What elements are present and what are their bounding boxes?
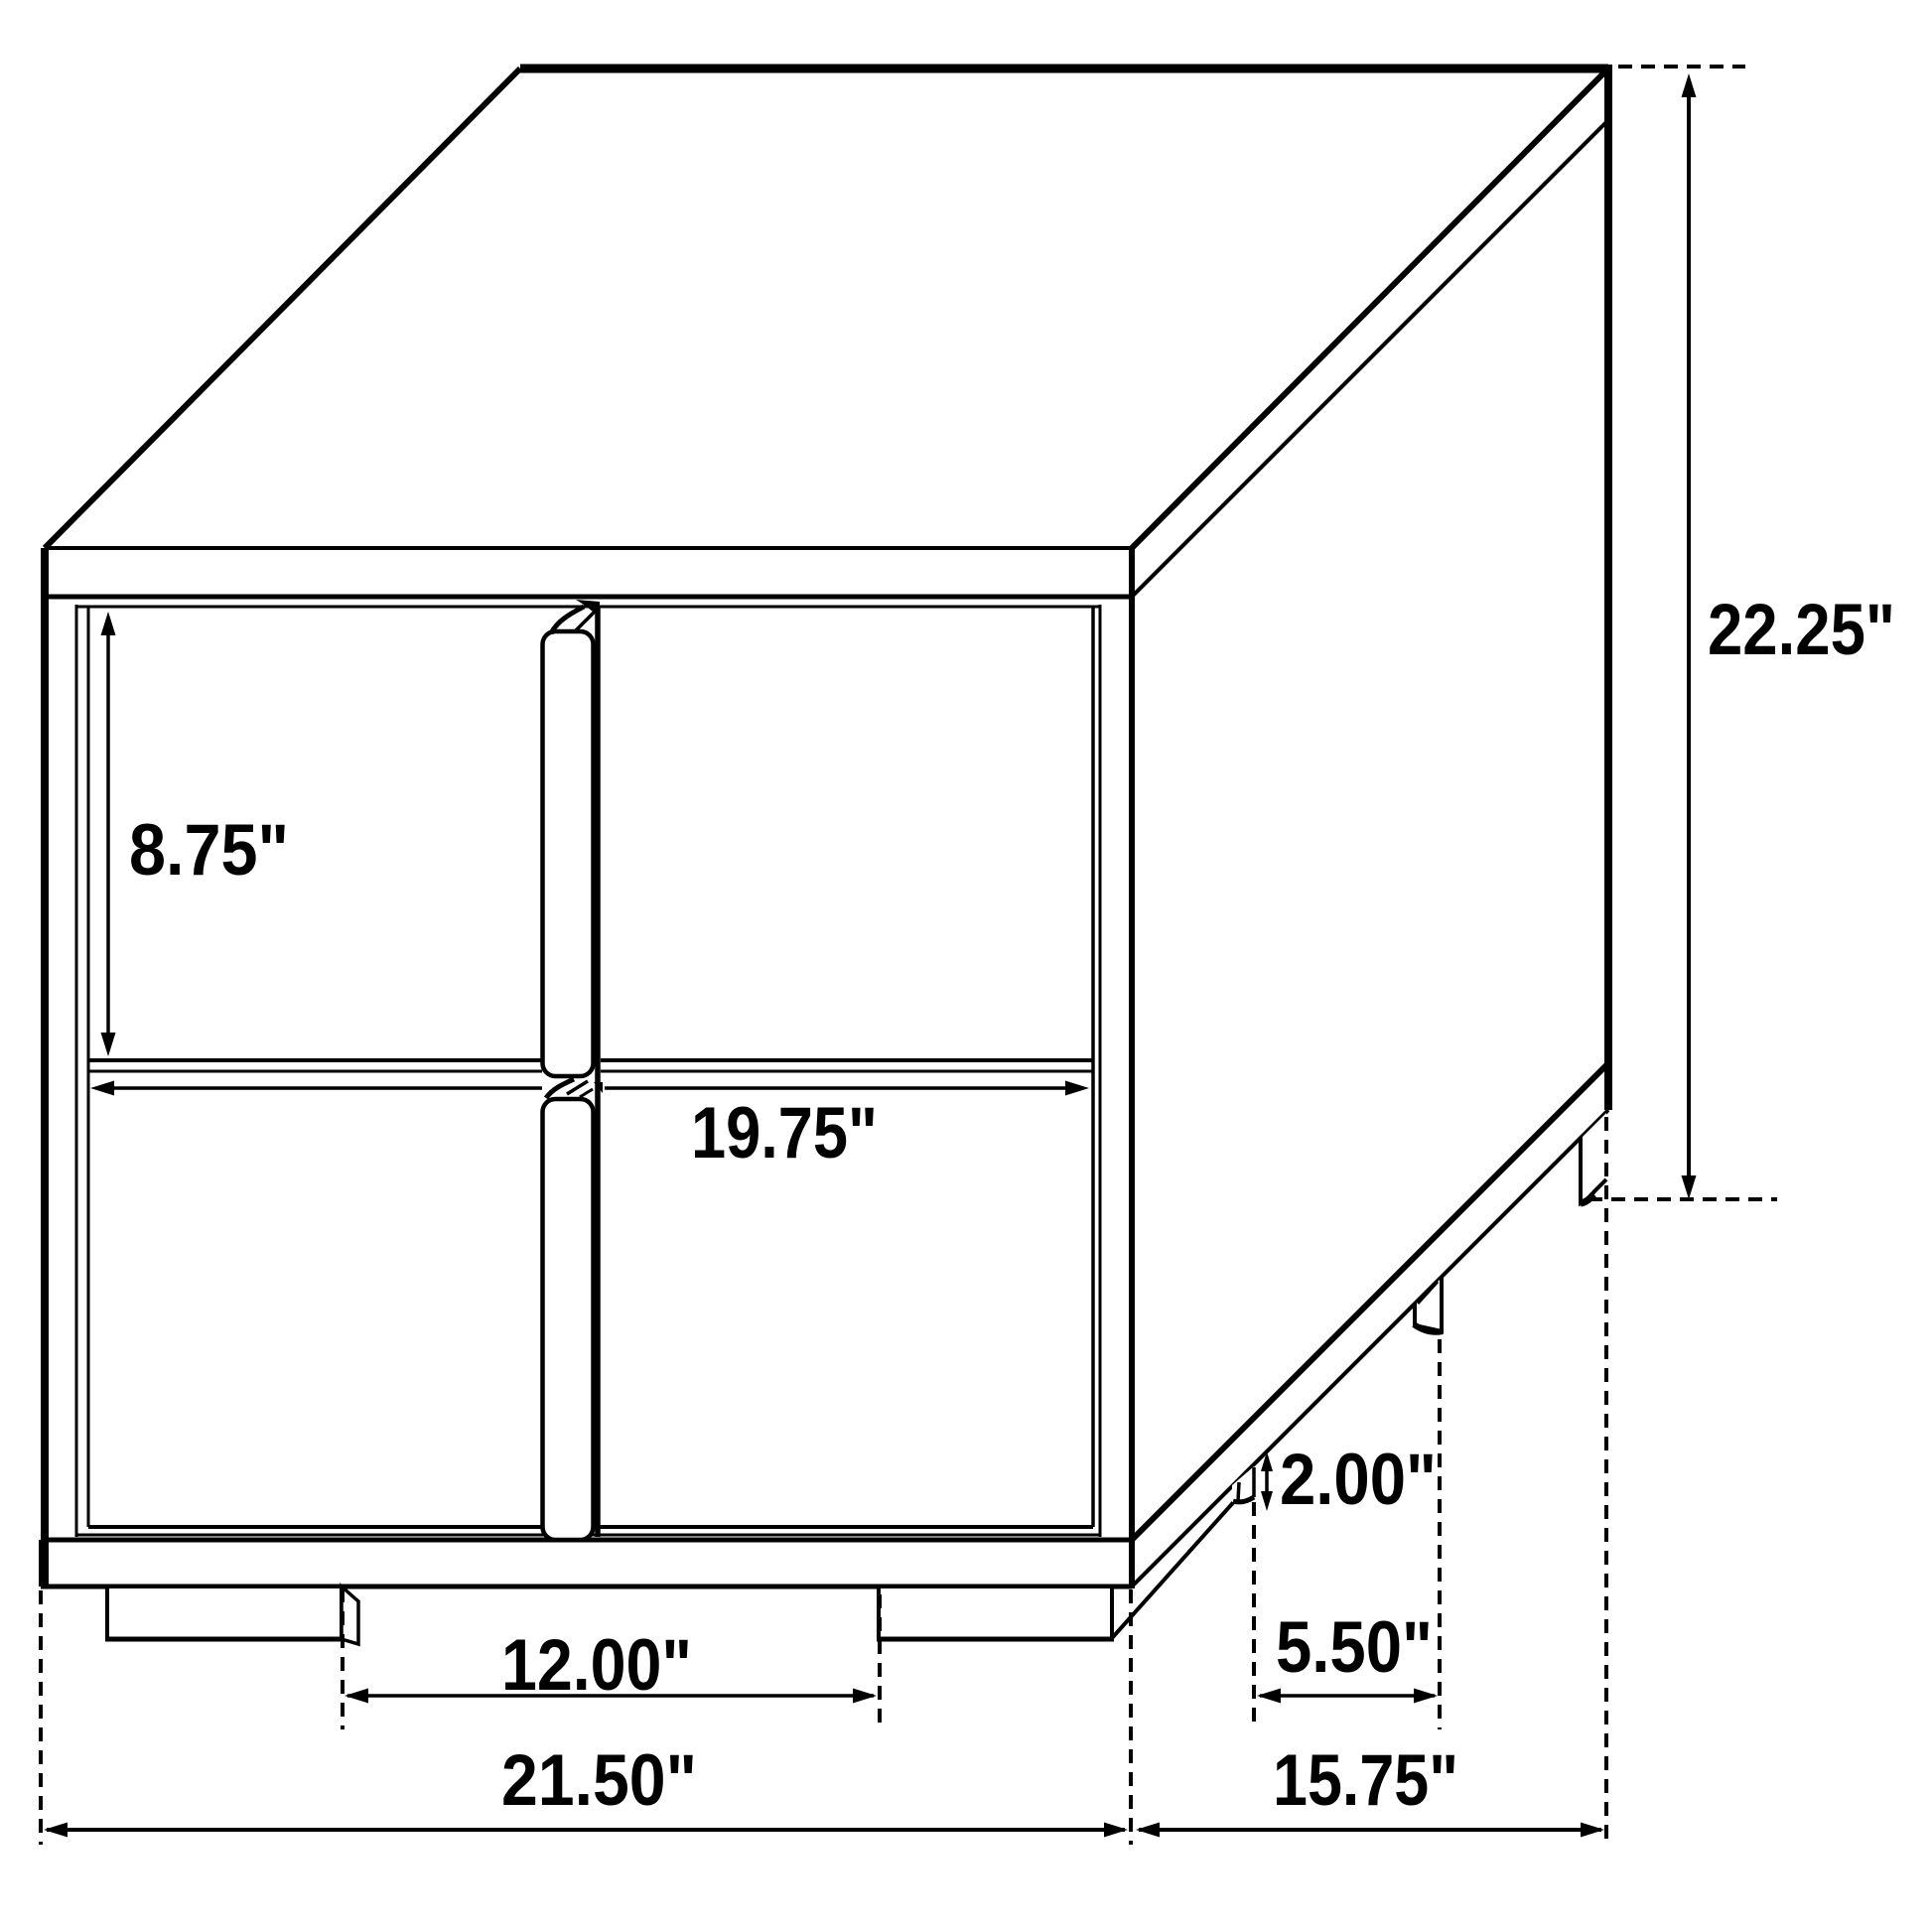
svg-text:15.75": 15.75" [1273,1740,1458,1821]
svg-text:8.75": 8.75" [129,810,289,891]
svg-text:21.50": 21.50" [501,1740,697,1821]
svg-text:12.00": 12.00" [501,1625,692,1706]
svg-text:5.50": 5.50" [1276,1607,1433,1688]
svg-text:19.75": 19.75" [691,1093,878,1173]
svg-text:22.25": 22.25" [1708,590,1895,670]
svg-text:2.00": 2.00" [1280,1440,1437,1520]
